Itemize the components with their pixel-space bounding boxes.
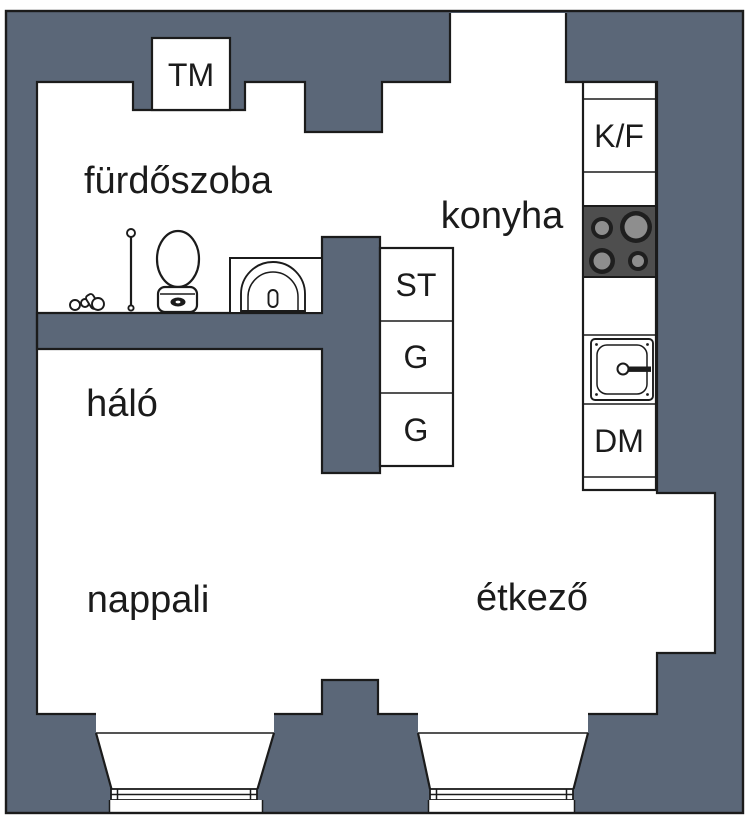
small-object — [92, 298, 104, 310]
cooktop-icon — [583, 206, 656, 277]
room-label-bedroom: háló — [86, 383, 158, 425]
burner-center — [595, 221, 609, 235]
burner-center — [594, 253, 611, 270]
room-label-dining-room: étkező — [476, 577, 588, 619]
floor-plan: TM K/F DM — [0, 0, 750, 821]
room-label-bathroom: fürdőszoba — [84, 160, 273, 202]
corner-washbasin-icon — [230, 258, 322, 313]
room-label-kitchen: konyha — [441, 195, 564, 237]
toilet-bowl — [157, 231, 199, 287]
cabinet-st-label: ST — [396, 267, 437, 303]
bay-opening — [418, 712, 588, 734]
toilet-icon — [157, 231, 199, 312]
floor-plan-svg: TM K/F DM — [0, 0, 750, 821]
room-label-living-room: nappali — [87, 579, 210, 621]
faucet-arm — [628, 367, 651, 372]
cabinet-column: ST G G — [380, 248, 453, 466]
washing-machine: TM — [152, 38, 230, 110]
brush-base — [128, 305, 133, 310]
small-object — [70, 300, 80, 310]
window-bay-right — [418, 712, 588, 812]
bay-reveal — [418, 733, 588, 789]
window-sill — [428, 800, 575, 812]
window-sill — [109, 800, 263, 812]
sink-screw — [646, 393, 649, 396]
kitchen-counter: K/F DM — [583, 82, 656, 490]
brush-top — [127, 229, 135, 237]
sink-screw — [595, 343, 598, 346]
sink-screw — [595, 393, 598, 396]
bay-reveal — [96, 733, 274, 789]
faucet-base — [618, 364, 629, 375]
kitchen-sink-icon — [591, 339, 653, 400]
cabinet-g1-label: G — [404, 339, 429, 375]
toilet-button-dot — [176, 301, 181, 304]
washbasin-tap — [269, 290, 278, 307]
burner-center — [625, 216, 648, 239]
washing-machine-label: TM — [168, 57, 214, 93]
sink-screw — [646, 343, 649, 346]
fridge-freezer-label: K/F — [594, 118, 644, 154]
bay-opening — [96, 712, 274, 734]
burner-center — [632, 255, 644, 267]
cabinet-g2-label: G — [404, 412, 429, 448]
window-bay-left — [96, 712, 274, 812]
dishwasher-label: DM — [594, 423, 644, 459]
